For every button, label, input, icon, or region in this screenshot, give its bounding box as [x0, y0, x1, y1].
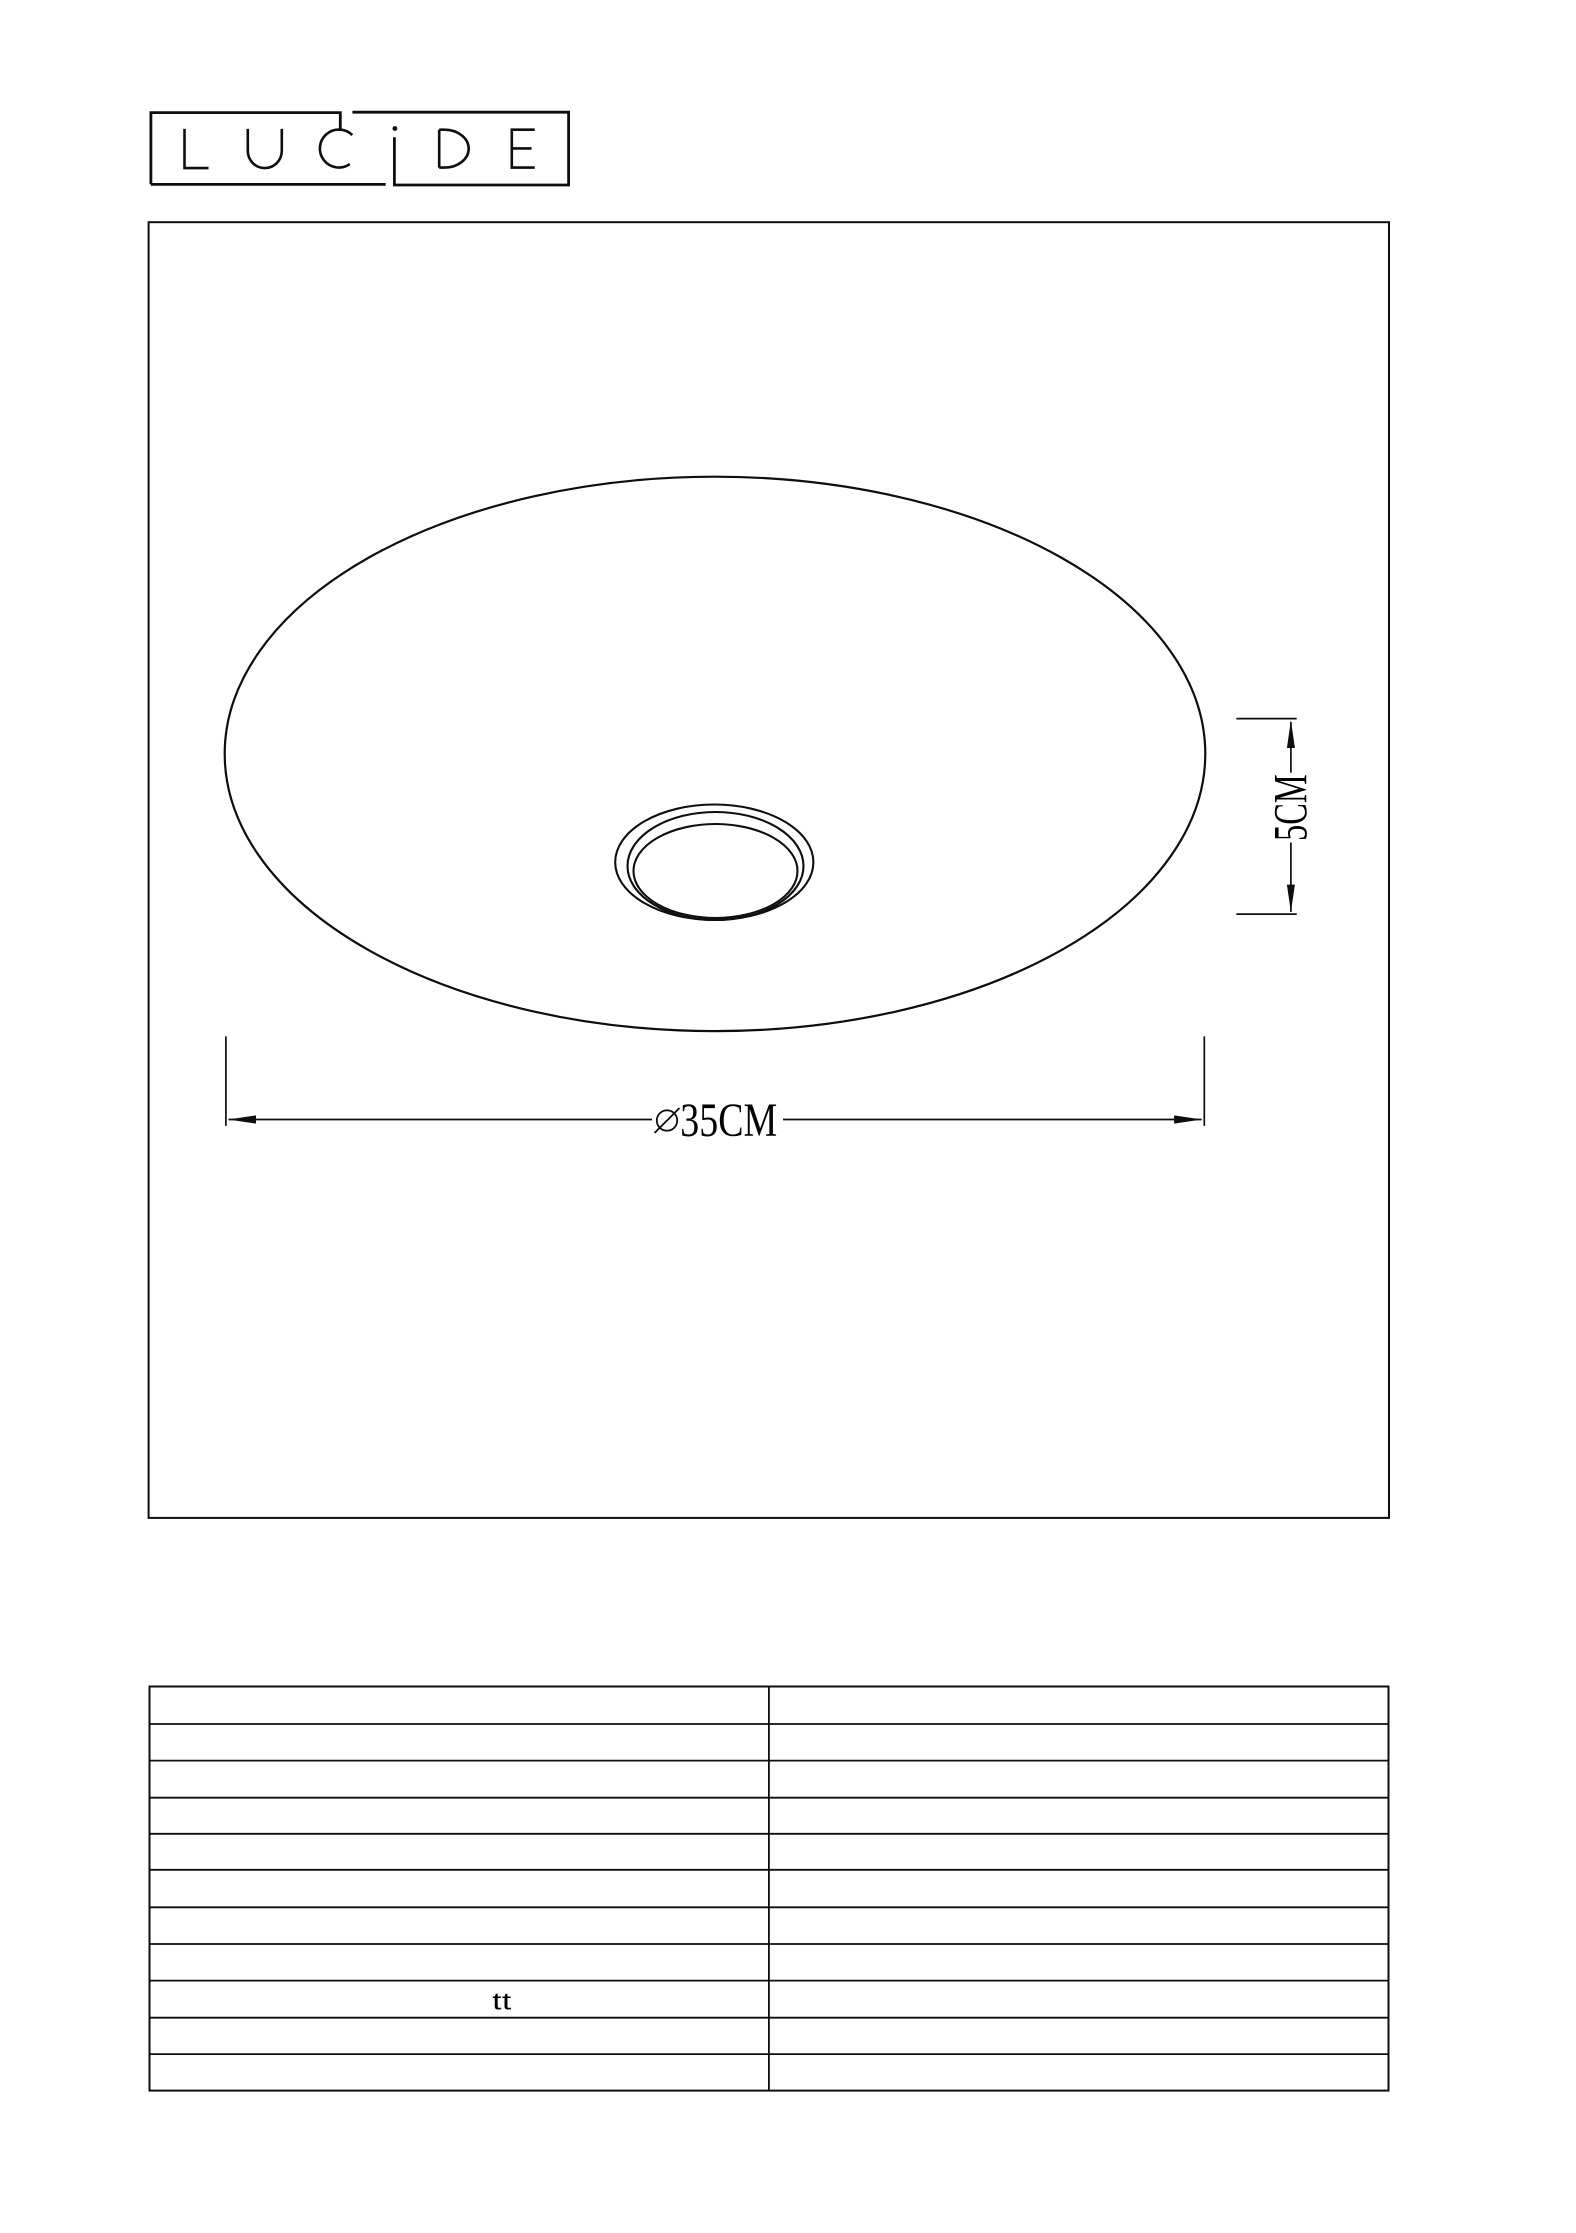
svg-text:tt: tt [492, 1989, 512, 2016]
svg-text:5CM: 5CM [1264, 774, 1317, 841]
svg-text:35CM: 35CM [680, 1094, 777, 1147]
